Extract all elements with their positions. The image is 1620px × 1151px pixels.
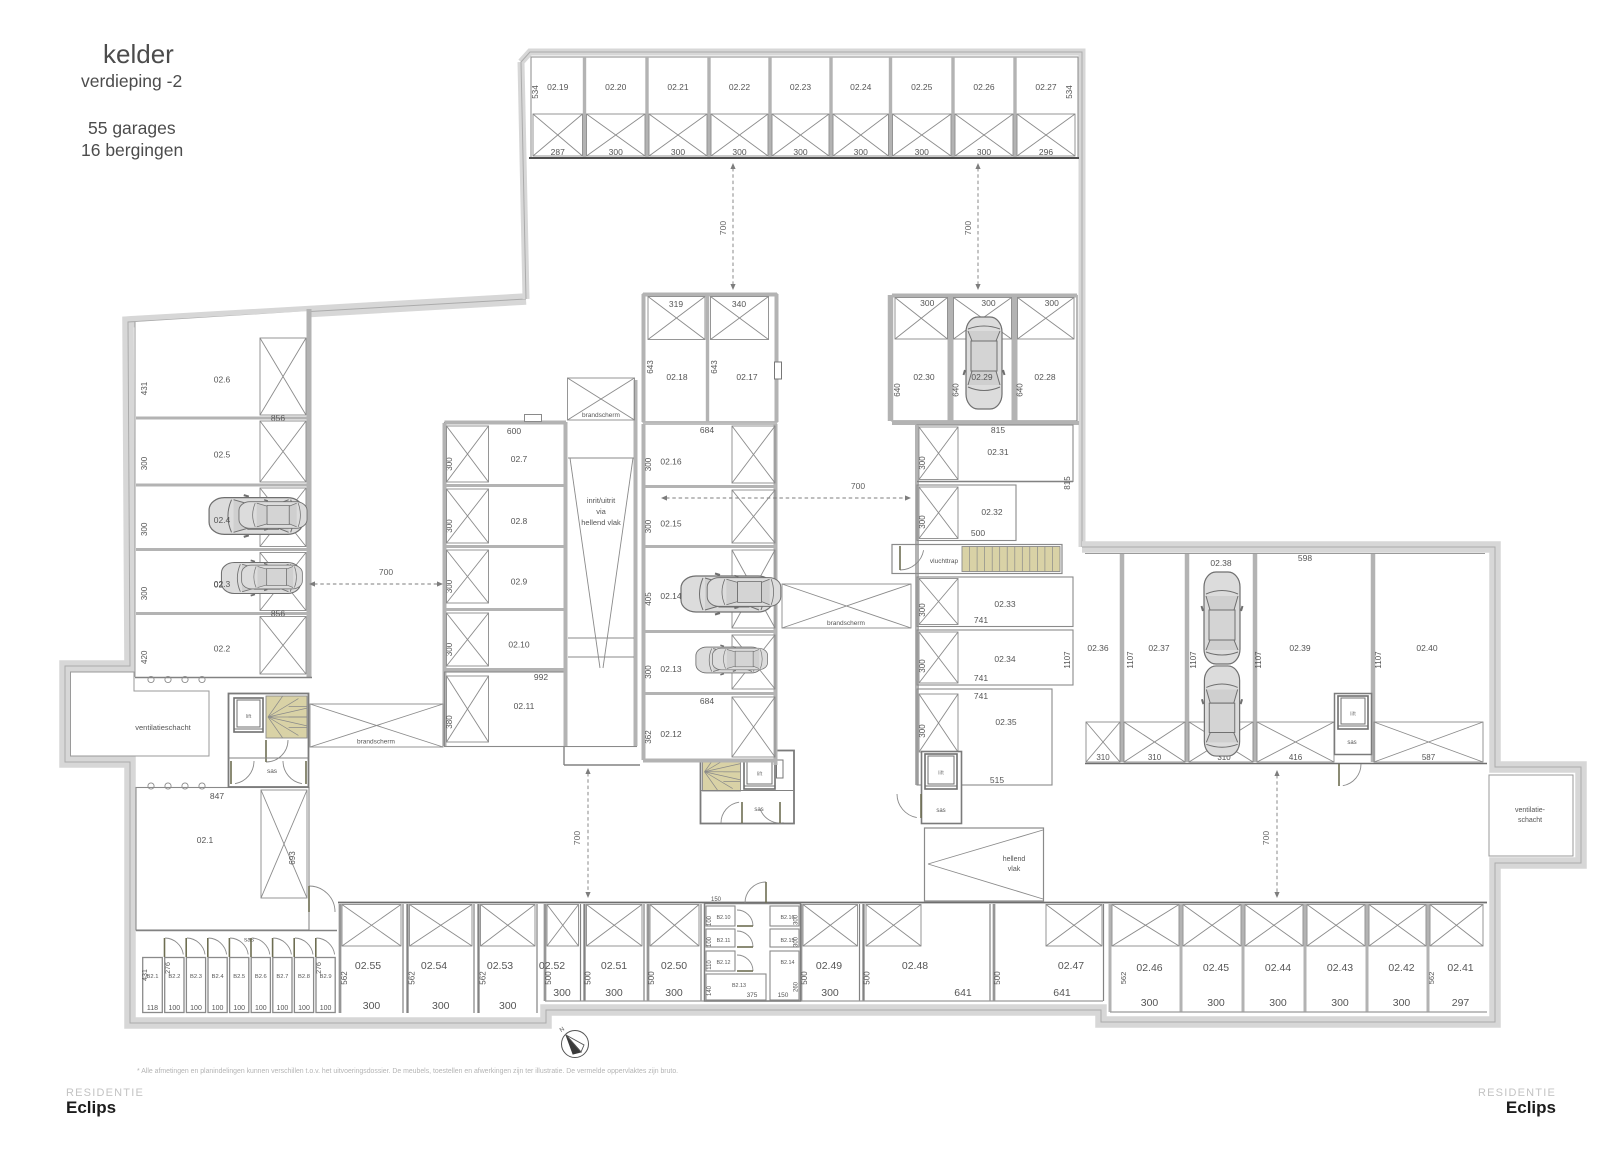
- svg-text:02.47: 02.47: [1058, 960, 1084, 972]
- svg-text:B2.4: B2.4: [212, 974, 225, 980]
- svg-text:297: 297: [1452, 997, 1470, 1009]
- svg-text:inrit/uitrit: inrit/uitrit: [587, 496, 616, 505]
- svg-text:815: 815: [1063, 476, 1072, 490]
- svg-text:118: 118: [147, 1005, 158, 1012]
- svg-text:02.29: 02.29: [971, 372, 993, 382]
- svg-text:300: 300: [644, 457, 653, 471]
- svg-text:562: 562: [340, 971, 349, 985]
- svg-text:640: 640: [1016, 383, 1025, 397]
- svg-text:sas: sas: [936, 808, 945, 814]
- svg-text:300: 300: [915, 147, 929, 157]
- svg-text:B2.2: B2.2: [168, 974, 180, 980]
- svg-text:500: 500: [971, 528, 985, 538]
- svg-text:02.10: 02.10: [508, 640, 530, 650]
- svg-text:700: 700: [718, 221, 728, 235]
- svg-text:140: 140: [707, 985, 713, 996]
- svg-text:643: 643: [646, 360, 655, 374]
- svg-text:1107: 1107: [1189, 651, 1198, 669]
- svg-text:420: 420: [140, 650, 149, 664]
- svg-text:641: 641: [1053, 987, 1071, 999]
- svg-text:02.34: 02.34: [994, 654, 1016, 664]
- svg-text:1107: 1107: [1063, 651, 1072, 669]
- svg-text:02.40: 02.40: [1416, 643, 1438, 653]
- svg-text:B2.12: B2.12: [716, 960, 730, 966]
- svg-text:741: 741: [974, 691, 988, 701]
- svg-text:B2.6: B2.6: [255, 974, 267, 980]
- svg-text:B2.9: B2.9: [320, 974, 332, 980]
- svg-text:02.8: 02.8: [511, 516, 528, 526]
- svg-text:02.18: 02.18: [666, 372, 688, 382]
- svg-text:02.36: 02.36: [1087, 643, 1109, 653]
- svg-text:B2.13: B2.13: [732, 983, 746, 989]
- svg-text:brandscherm: brandscherm: [582, 412, 620, 419]
- svg-text:brandscherm: brandscherm: [357, 739, 395, 746]
- svg-text:02.26: 02.26: [973, 82, 995, 92]
- svg-text:100: 100: [255, 1005, 267, 1012]
- svg-text:hellend: hellend: [1003, 856, 1026, 863]
- svg-text:300: 300: [981, 298, 995, 308]
- svg-text:300: 300: [140, 586, 149, 600]
- svg-text:100: 100: [320, 1005, 332, 1012]
- svg-text:02.20: 02.20: [605, 82, 627, 92]
- svg-text:310: 310: [1148, 753, 1162, 762]
- svg-text:B2.15: B2.15: [780, 938, 794, 944]
- svg-text:02.16: 02.16: [660, 457, 682, 467]
- svg-text:856: 856: [271, 609, 285, 619]
- svg-text:verdieping -2: verdieping -2: [81, 71, 182, 91]
- svg-text:431: 431: [142, 969, 149, 981]
- svg-text:02.24: 02.24: [850, 82, 872, 92]
- svg-text:300: 300: [854, 147, 868, 157]
- svg-text:640: 640: [952, 383, 961, 397]
- svg-text:02.43: 02.43: [1327, 962, 1353, 974]
- svg-text:02.30: 02.30: [913, 372, 935, 382]
- svg-text:300: 300: [665, 987, 683, 999]
- svg-text:700: 700: [851, 481, 865, 491]
- svg-text:340: 340: [732, 299, 746, 309]
- svg-text:100: 100: [233, 1005, 245, 1012]
- svg-text:500: 500: [800, 971, 809, 985]
- svg-text:02.9: 02.9: [511, 577, 528, 587]
- svg-text:02.23: 02.23: [790, 82, 812, 92]
- svg-text:296: 296: [1039, 147, 1053, 157]
- svg-text:300: 300: [644, 519, 653, 533]
- svg-text:02.1: 02.1: [197, 835, 214, 845]
- svg-text:380: 380: [445, 715, 454, 729]
- svg-text:300: 300: [553, 987, 571, 999]
- svg-text:lift: lift: [1350, 712, 1356, 718]
- svg-text:300: 300: [499, 1000, 517, 1012]
- svg-text:B2.8: B2.8: [298, 974, 310, 980]
- svg-text:300: 300: [920, 298, 934, 308]
- svg-text:362: 362: [644, 730, 653, 744]
- svg-text:260: 260: [794, 981, 800, 992]
- svg-text:300: 300: [609, 147, 623, 157]
- svg-text:405: 405: [644, 592, 653, 606]
- svg-text:schacht: schacht: [1518, 817, 1542, 824]
- svg-text:02.22: 02.22: [729, 82, 751, 92]
- svg-text:02.44: 02.44: [1265, 962, 1291, 974]
- svg-text:310: 310: [1096, 753, 1110, 762]
- svg-text:562: 562: [1427, 972, 1436, 985]
- svg-text:100: 100: [707, 936, 713, 947]
- svg-text:sas: sas: [754, 807, 763, 813]
- svg-text:700: 700: [1261, 831, 1271, 845]
- svg-text:300: 300: [140, 522, 149, 536]
- svg-text:02.25: 02.25: [911, 82, 933, 92]
- svg-text:02.49: 02.49: [816, 960, 842, 972]
- svg-text:lift: lift: [938, 771, 944, 777]
- svg-text:02.14: 02.14: [660, 591, 682, 601]
- svg-text:sas: sas: [1347, 740, 1356, 746]
- svg-text:319: 319: [669, 299, 683, 309]
- svg-text:300: 300: [432, 1000, 450, 1012]
- svg-text:300: 300: [140, 456, 149, 470]
- svg-text:B2.7: B2.7: [276, 974, 288, 980]
- svg-text:741: 741: [974, 673, 988, 683]
- svg-text:55 garages: 55 garages: [88, 118, 176, 138]
- svg-text:300: 300: [918, 724, 927, 738]
- svg-text:741: 741: [974, 615, 988, 625]
- svg-text:562: 562: [1119, 972, 1128, 985]
- svg-text:640: 640: [893, 383, 902, 397]
- svg-text:431: 431: [140, 381, 149, 395]
- svg-text:515: 515: [990, 775, 1004, 785]
- svg-text:300: 300: [793, 147, 807, 157]
- svg-text:02.35: 02.35: [995, 717, 1017, 727]
- svg-text:02.54: 02.54: [421, 960, 447, 972]
- svg-text:300: 300: [918, 603, 927, 617]
- svg-text:276: 276: [165, 962, 172, 974]
- svg-text:847: 847: [210, 791, 224, 801]
- svg-text:B2.5: B2.5: [233, 974, 245, 980]
- svg-text:* Alle afmetingen en planindel: * Alle afmetingen en planindelingen kunn…: [137, 1068, 678, 1075]
- svg-text:300: 300: [1331, 997, 1349, 1009]
- svg-text:641: 641: [954, 987, 972, 999]
- svg-text:via: via: [596, 507, 606, 516]
- svg-text:300: 300: [918, 456, 927, 470]
- svg-text:856: 856: [271, 413, 285, 423]
- svg-text:02.50: 02.50: [661, 960, 687, 972]
- svg-text:02.41: 02.41: [1447, 962, 1473, 974]
- svg-text:300: 300: [1207, 997, 1225, 1009]
- svg-text:500: 500: [584, 971, 593, 985]
- svg-text:276: 276: [316, 962, 323, 974]
- svg-text:02.42: 02.42: [1388, 962, 1414, 974]
- svg-text:02.55: 02.55: [355, 960, 381, 972]
- svg-text:16 bergingen: 16 bergingen: [81, 140, 183, 160]
- svg-text:02.37: 02.37: [1148, 643, 1170, 653]
- svg-text:02.17: 02.17: [736, 372, 758, 382]
- svg-text:02.4: 02.4: [214, 515, 231, 525]
- svg-text:ventilatieschacht: ventilatieschacht: [135, 723, 191, 732]
- svg-text:300: 300: [1045, 298, 1059, 308]
- svg-text:300: 300: [363, 1000, 381, 1012]
- svg-text:300: 300: [918, 659, 927, 673]
- svg-text:300: 300: [1269, 997, 1287, 1009]
- svg-text:300: 300: [605, 987, 623, 999]
- svg-text:300: 300: [918, 515, 927, 529]
- svg-text:598: 598: [1298, 553, 1312, 563]
- svg-text:02.13: 02.13: [660, 664, 682, 674]
- svg-text:B2.14: B2.14: [780, 960, 794, 966]
- svg-text:02.39: 02.39: [1289, 643, 1311, 653]
- svg-text:534: 534: [531, 85, 540, 99]
- svg-text:02.5: 02.5: [214, 450, 231, 460]
- svg-text:300: 300: [1141, 997, 1159, 1009]
- svg-text:Eclips: Eclips: [66, 1098, 116, 1117]
- svg-text:02.51: 02.51: [601, 960, 627, 972]
- svg-text:sas: sas: [244, 937, 255, 944]
- svg-text:300: 300: [1393, 997, 1411, 1009]
- svg-text:150: 150: [711, 897, 722, 903]
- svg-text:100: 100: [212, 1005, 224, 1012]
- svg-text:300: 300: [644, 665, 653, 679]
- svg-text:287: 287: [551, 147, 565, 157]
- svg-text:02.48: 02.48: [902, 960, 928, 972]
- svg-text:B2.16: B2.16: [780, 915, 794, 921]
- svg-text:Eclips: Eclips: [1506, 1098, 1556, 1117]
- svg-text:1107: 1107: [1254, 651, 1263, 669]
- svg-text:02.53: 02.53: [487, 960, 513, 972]
- svg-text:02.12: 02.12: [660, 729, 682, 739]
- svg-text:sas: sas: [267, 768, 278, 775]
- svg-text:02.7: 02.7: [511, 454, 528, 464]
- svg-text:lift: lift: [246, 714, 252, 720]
- svg-text:300: 300: [977, 147, 991, 157]
- svg-text:700: 700: [963, 221, 973, 235]
- svg-text:02.31: 02.31: [987, 447, 1009, 457]
- svg-text:vluchttrap: vluchttrap: [930, 558, 959, 565]
- svg-text:lift: lift: [757, 771, 763, 777]
- svg-text:300: 300: [821, 987, 839, 999]
- svg-text:B2.11: B2.11: [717, 938, 731, 944]
- svg-text:hellend vlak: hellend vlak: [581, 518, 621, 527]
- svg-text:02.52: 02.52: [539, 960, 565, 972]
- svg-text:600: 600: [507, 426, 521, 436]
- svg-text:416: 416: [1289, 753, 1303, 762]
- svg-text:375: 375: [747, 992, 758, 999]
- svg-text:brandscherm: brandscherm: [827, 620, 865, 627]
- svg-text:150: 150: [778, 992, 789, 999]
- svg-text:02.28: 02.28: [1034, 372, 1056, 382]
- svg-text:02.21: 02.21: [667, 82, 689, 92]
- svg-text:1107: 1107: [1126, 651, 1135, 669]
- svg-text:02.15: 02.15: [660, 519, 682, 529]
- svg-text:100: 100: [277, 1005, 289, 1012]
- svg-text:100: 100: [707, 915, 713, 926]
- svg-text:500: 500: [863, 971, 872, 985]
- svg-text:02.33: 02.33: [994, 599, 1016, 609]
- svg-text:02.11: 02.11: [514, 701, 535, 711]
- svg-text:693: 693: [288, 851, 297, 865]
- svg-text:643: 643: [710, 360, 719, 374]
- svg-text:02.46: 02.46: [1136, 962, 1162, 974]
- svg-text:02.38: 02.38: [1210, 558, 1232, 568]
- svg-text:100: 100: [190, 1005, 202, 1012]
- svg-text:500: 500: [544, 971, 553, 985]
- svg-text:300: 300: [794, 936, 800, 947]
- svg-text:02.19: 02.19: [547, 82, 569, 92]
- svg-text:02.45: 02.45: [1203, 962, 1229, 974]
- svg-text:587: 587: [1422, 753, 1436, 762]
- svg-text:110: 110: [707, 960, 713, 970]
- svg-text:700: 700: [572, 831, 582, 845]
- svg-text:815: 815: [991, 425, 1005, 435]
- svg-text:700: 700: [379, 567, 393, 577]
- svg-text:684: 684: [700, 425, 714, 435]
- svg-text:562: 562: [408, 971, 417, 985]
- svg-text:02.27: 02.27: [1035, 82, 1057, 92]
- svg-text:300: 300: [794, 914, 800, 925]
- svg-text:02.6: 02.6: [214, 375, 231, 385]
- svg-text:300: 300: [671, 147, 685, 157]
- svg-text:500: 500: [647, 971, 656, 985]
- svg-text:vlak: vlak: [1008, 866, 1021, 873]
- svg-text:02.3: 02.3: [214, 579, 231, 589]
- svg-text:992: 992: [534, 672, 548, 682]
- svg-text:684: 684: [700, 696, 714, 706]
- svg-text:02.2: 02.2: [214, 643, 231, 653]
- svg-text:300: 300: [732, 147, 746, 157]
- svg-text:534: 534: [1065, 85, 1074, 99]
- svg-text:kelder: kelder: [103, 39, 174, 69]
- svg-text:500: 500: [993, 971, 1002, 985]
- svg-text:B2.10: B2.10: [716, 915, 730, 921]
- svg-text:100: 100: [298, 1005, 310, 1012]
- svg-text:02.32: 02.32: [981, 507, 1003, 517]
- svg-text:1107: 1107: [1374, 651, 1383, 669]
- svg-text:100: 100: [169, 1005, 181, 1012]
- svg-text:ventilatie-: ventilatie-: [1515, 807, 1546, 814]
- svg-text:562: 562: [479, 971, 488, 985]
- svg-text:B2.3: B2.3: [190, 974, 202, 980]
